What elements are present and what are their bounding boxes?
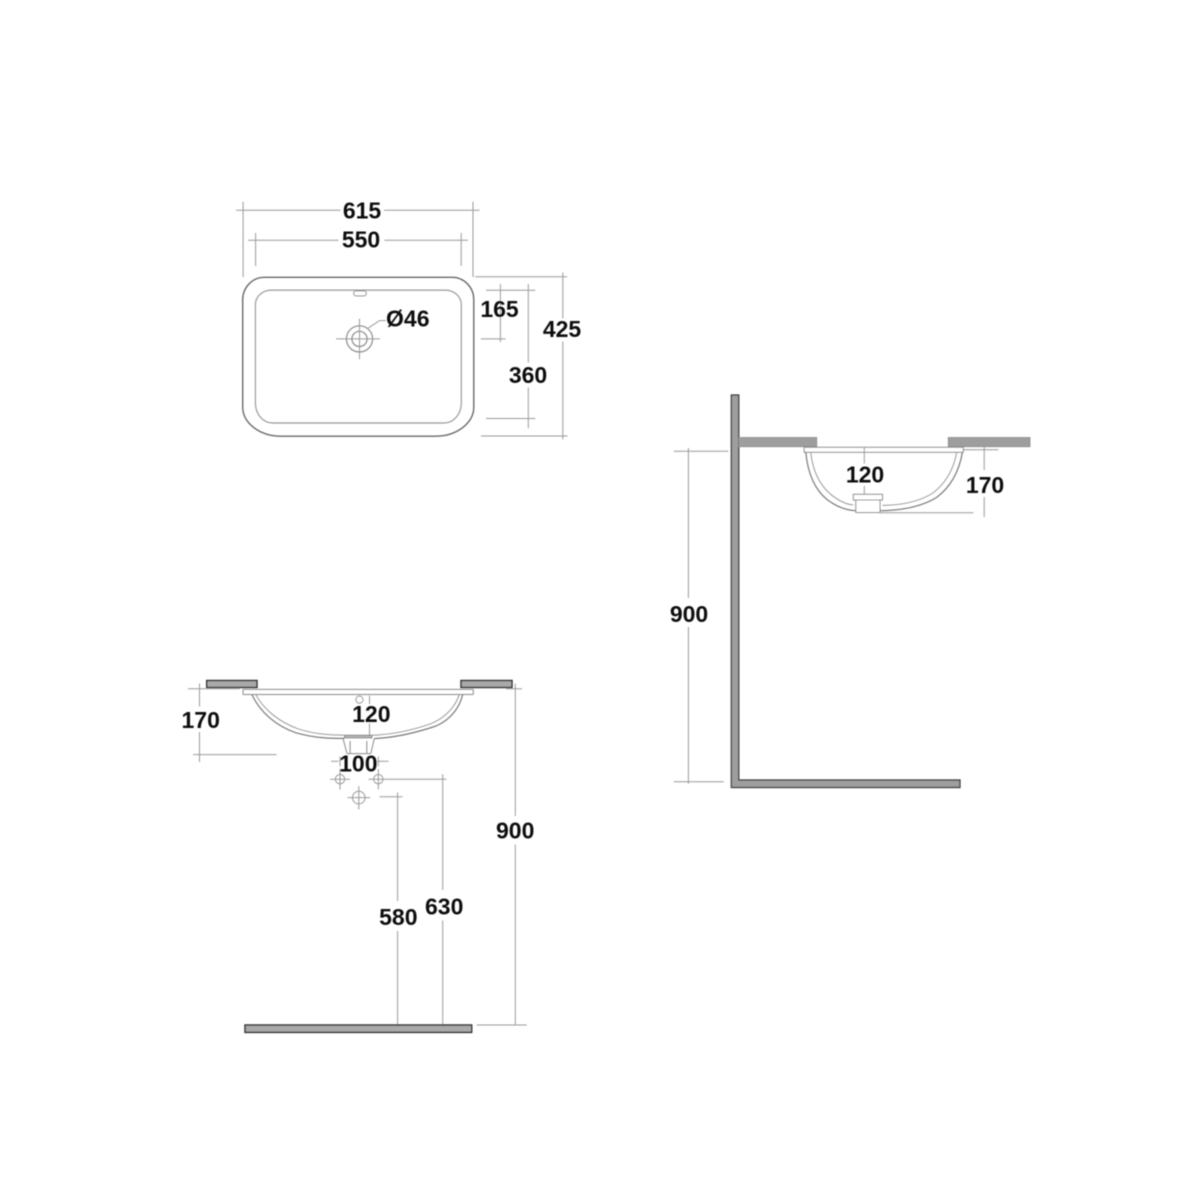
svg-text:630: 630 [425, 894, 463, 920]
svg-text:580: 580 [379, 904, 417, 930]
svg-text:170: 170 [966, 472, 1004, 498]
svg-text:615: 615 [343, 198, 382, 224]
svg-text:900: 900 [496, 817, 534, 843]
svg-text:425: 425 [543, 316, 582, 342]
svg-text:550: 550 [342, 227, 380, 253]
svg-text:900: 900 [670, 601, 708, 627]
svg-text:Ø46: Ø46 [386, 306, 429, 332]
svg-text:120: 120 [352, 701, 390, 727]
svg-text:120: 120 [846, 461, 884, 487]
svg-text:165: 165 [480, 296, 519, 322]
svg-text:100: 100 [339, 750, 377, 776]
svg-text:170: 170 [182, 707, 220, 733]
svg-text:360: 360 [509, 362, 547, 388]
